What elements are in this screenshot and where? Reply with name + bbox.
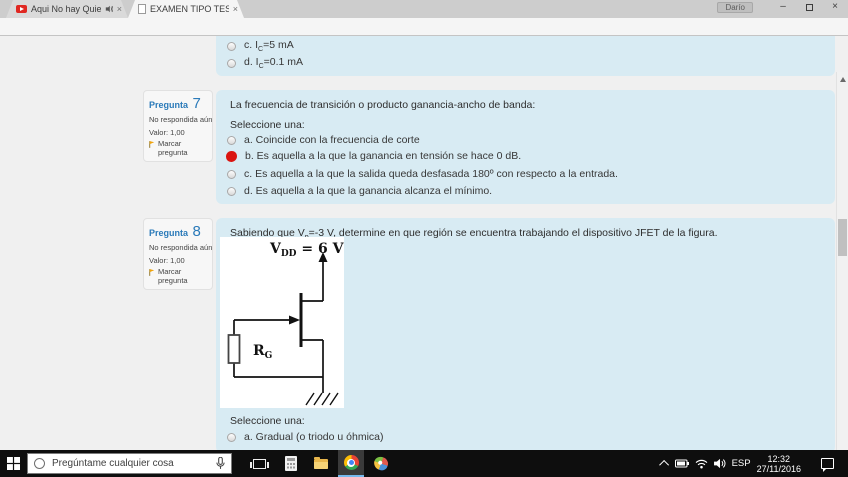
- volume-icon[interactable]: [714, 458, 726, 469]
- tab-close-icon[interactable]: ×: [117, 4, 122, 14]
- answer-option-c[interactable]: c. Es aquella a la que la salida queda d…: [227, 168, 618, 180]
- answer-option-b[interactable]: b. Es aquella a la que la ganancia en te…: [226, 150, 521, 162]
- flag-label: Marcar pregunta: [158, 268, 199, 285]
- folder-icon: [314, 459, 328, 469]
- question-value: Valor: 1,00: [149, 128, 207, 137]
- resistor-rg: [229, 335, 240, 363]
- time-text: 12:32: [757, 454, 801, 464]
- option-label: a. Coincide con la frecuencia de corte: [244, 134, 420, 146]
- tab-close-icon[interactable]: ×: [233, 4, 238, 14]
- question-word: Pregunta: [149, 100, 188, 110]
- page-icon: [138, 4, 146, 14]
- option-text: =0.1 mA: [264, 56, 303, 68]
- tab-strip: Aqui No hay Quien V × EXAMEN TIPO TEST P…: [0, 0, 848, 18]
- question-7-info: Pregunta 7 No respondida aún Valor: 1,00…: [143, 90, 213, 162]
- minimize-button[interactable]: –: [770, 0, 796, 15]
- tab-exam[interactable]: EXAMEN TIPO TEST PRE ×: [128, 0, 244, 18]
- radio-button[interactable]: [227, 170, 236, 179]
- palette-app-icon: [372, 455, 390, 472]
- question-status: No respondida aún: [149, 243, 207, 252]
- page-scrollbar[interactable]: [836, 72, 848, 450]
- clock[interactable]: 12:32 27/11/2016: [757, 454, 801, 474]
- tray-expand-icon[interactable]: [659, 460, 669, 470]
- language-indicator[interactable]: ESP: [732, 458, 751, 469]
- calculator-button[interactable]: [278, 450, 304, 477]
- question-text: La frecuencia de transición o producto g…: [230, 99, 535, 111]
- restore-button[interactable]: [796, 0, 822, 15]
- question-8-info: Pregunta 8 No respondida aún Valor: 1,00…: [143, 218, 213, 290]
- answer-option-d[interactable]: d. Es aquella a la que la ganancia alcan…: [227, 185, 492, 197]
- flag-label: Marcar pregunta: [158, 140, 199, 157]
- answer-prompt: Seleccione una:: [230, 415, 305, 427]
- tab-audio-icon[interactable]: [105, 5, 113, 13]
- search-placeholder: Pregúntame cualquier cosa: [52, 458, 209, 469]
- circuit-diagram: VDD = 6 V RG: [220, 237, 344, 408]
- answer-option[interactable]: c. IC=5 mA: [227, 39, 294, 53]
- tab-title: Aqui No hay Quien V: [31, 4, 101, 14]
- option-text: c. I: [244, 39, 258, 51]
- question-status: No respondida aún: [149, 115, 207, 124]
- date-text: 27/11/2016: [757, 464, 801, 474]
- gate-arrow: [289, 316, 300, 325]
- jfet-circuit-figure: VDD = 6 V RG: [220, 237, 344, 408]
- rg-label: RG: [253, 343, 272, 361]
- scroll-up-icon[interactable]: [840, 77, 846, 82]
- ground-symbol: [306, 393, 338, 405]
- close-button[interactable]: ×: [822, 0, 848, 15]
- file-explorer-button[interactable]: [308, 450, 334, 477]
- question-label: Pregunta 7: [149, 95, 207, 113]
- option-label: d. IC=0.1 mA: [244, 56, 303, 70]
- question-value: Valor: 1,00: [149, 256, 207, 265]
- scrollbar-thumb[interactable]: [838, 219, 847, 256]
- question-7-body: La frecuencia de transición o producto g…: [216, 90, 835, 204]
- option-label: c. Es aquella a la que la salida queda d…: [244, 168, 618, 180]
- answer-prompt: Seleccione una:: [230, 119, 305, 131]
- question-text-part: =-3 V, determine en que región se encuen…: [309, 227, 718, 239]
- action-center-icon[interactable]: [821, 458, 834, 469]
- question-number: 8: [192, 223, 200, 240]
- profile-button[interactable]: Darío: [717, 2, 753, 13]
- flag-question-link[interactable]: Marcar pregunta: [149, 268, 199, 285]
- option-label: d. Es aquella a la que la ganancia alcan…: [244, 185, 492, 197]
- option-label: b. Es aquella a la que la ganancia en te…: [245, 150, 521, 162]
- option-text: d. I: [244, 56, 259, 68]
- answer-option[interactable]: d. IC=0.1 mA: [227, 56, 303, 70]
- chrome-taskbar-button[interactable]: [338, 450, 364, 477]
- radio-button[interactable]: [227, 42, 236, 51]
- flag-icon: [149, 268, 155, 277]
- flag-icon: [149, 140, 155, 149]
- youtube-icon: [16, 5, 27, 13]
- question-label: Pregunta 8: [149, 223, 207, 241]
- answer-option-a[interactable]: a. Coincide con la frecuencia de corte: [227, 134, 420, 146]
- windows-taskbar: Pregúntame cualquier cosa: [0, 450, 848, 477]
- windows-logo-icon: [7, 457, 20, 470]
- calculator-icon: [285, 456, 297, 471]
- radio-button-selected[interactable]: [226, 151, 237, 162]
- question-6-answer-block: c. IC=5 mA d. IC=0.1 mA: [216, 36, 835, 76]
- question-word: Pregunta: [149, 228, 188, 238]
- task-view-icon: [253, 459, 266, 469]
- start-button[interactable]: [0, 450, 26, 477]
- microphone-icon[interactable]: [216, 457, 225, 470]
- option-label: a. Gradual (o triodo u óhmica): [244, 431, 383, 443]
- task-view-button[interactable]: [246, 450, 272, 477]
- wifi-icon[interactable]: [695, 459, 708, 469]
- tab-youtube[interactable]: Aqui No hay Quien V ×: [6, 0, 128, 18]
- option-text: =5 mA: [263, 39, 294, 51]
- radio-button[interactable]: [227, 433, 236, 442]
- question-8-body: Sabiendo que Vp=-3 V, determine en que r…: [216, 218, 835, 450]
- radio-button[interactable]: [227, 187, 236, 196]
- restore-icon: [806, 4, 813, 11]
- cortana-icon: [34, 458, 45, 469]
- option-label: c. IC=5 mA: [244, 39, 294, 53]
- system-tray: ESP 12:32 27/11/2016: [662, 450, 848, 477]
- radio-button[interactable]: [227, 136, 236, 145]
- chrome-icon: [344, 455, 359, 470]
- browser-toolbar: ← → ↻ ⌂ i https://etsit.cv.uma.es/mod/qu…: [0, 18, 848, 36]
- question-number: 7: [192, 95, 200, 112]
- answer-option-a[interactable]: a. Gradual (o triodo u óhmica): [227, 431, 383, 443]
- battery-icon[interactable]: [675, 459, 689, 468]
- flag-question-link[interactable]: Marcar pregunta: [149, 140, 199, 157]
- vdd-label: VDD = 6 V: [269, 241, 344, 259]
- radio-button[interactable]: [227, 59, 236, 68]
- cortana-search-box[interactable]: Pregúntame cualquier cosa: [27, 453, 232, 474]
- palette-app-button[interactable]: [368, 450, 394, 477]
- tab-title: EXAMEN TIPO TEST PRE: [150, 4, 229, 14]
- quiz-page: c. IC=5 mA d. IC=0.1 mA Pregunta 7 No re…: [0, 36, 848, 450]
